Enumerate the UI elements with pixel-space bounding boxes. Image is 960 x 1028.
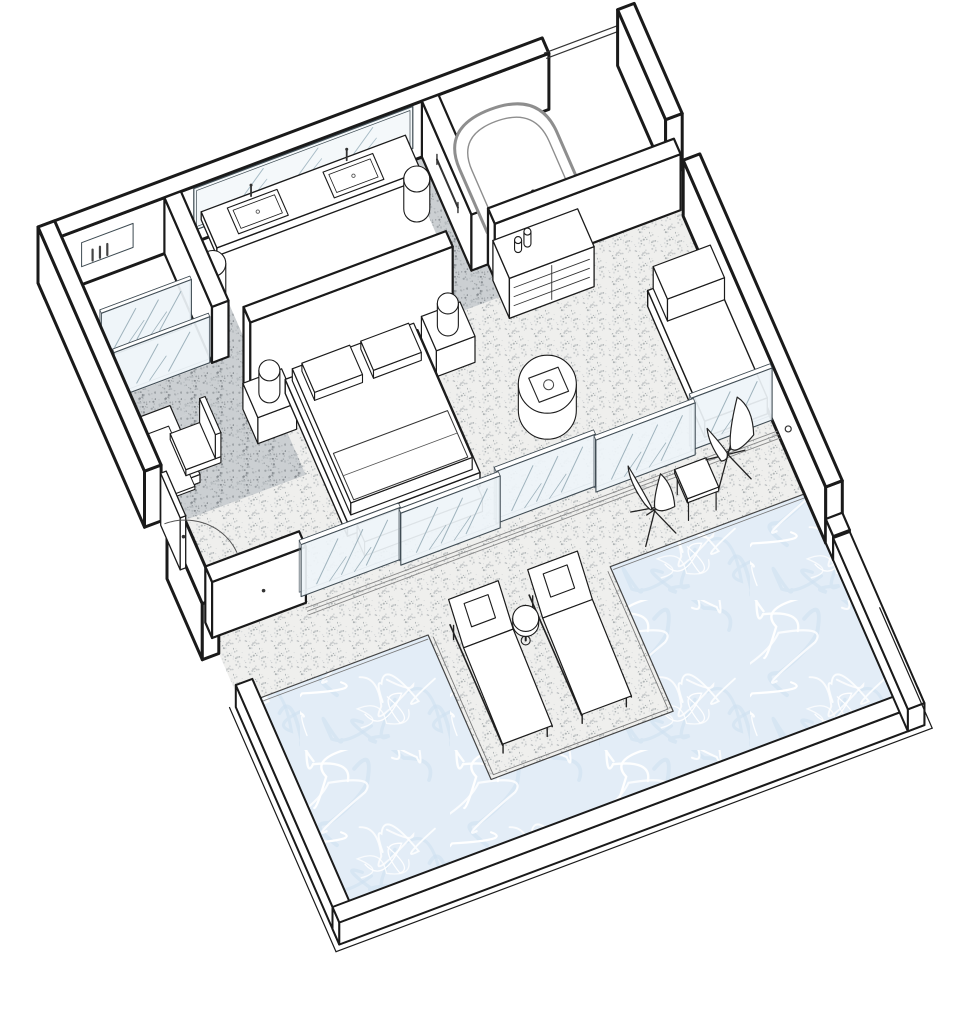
door-handle <box>262 589 266 593</box>
floor-plan-page <box>0 0 960 1028</box>
lintel-line <box>547 30 622 58</box>
table-lamp <box>259 360 280 403</box>
suite-axonometric-drawing <box>0 0 960 1028</box>
table-lamp <box>437 293 458 336</box>
dresser-bottle <box>515 237 522 253</box>
dresser-bottle <box>524 228 531 247</box>
door-handle <box>182 535 186 539</box>
lintel-line <box>544 25 619 53</box>
vanity-stool <box>404 166 430 222</box>
